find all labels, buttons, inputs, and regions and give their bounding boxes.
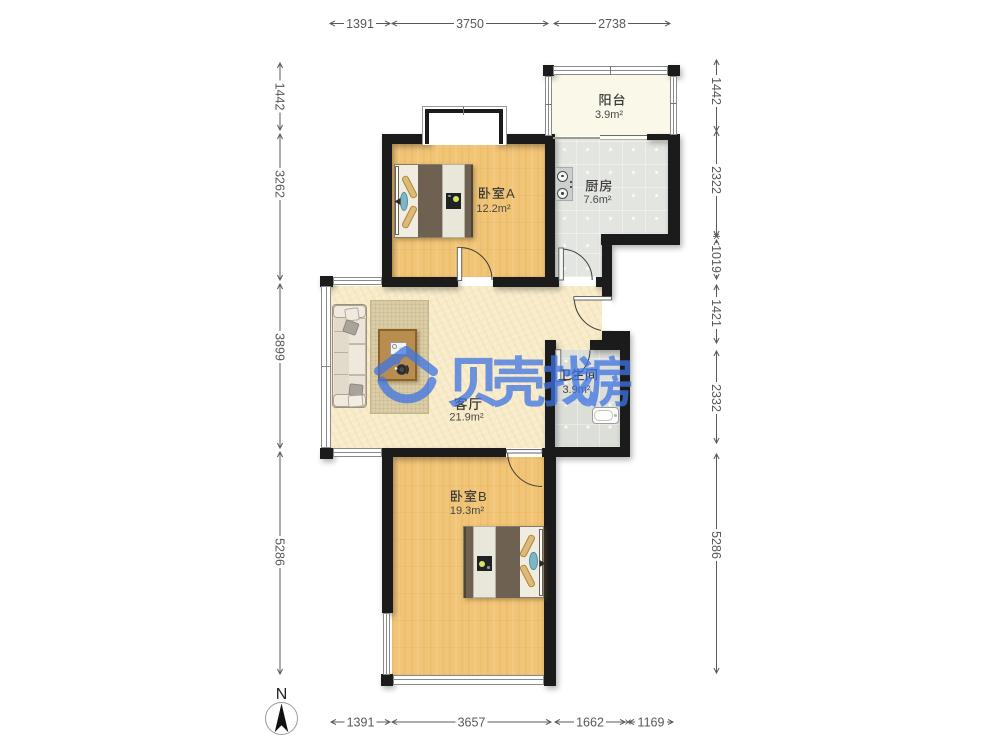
svg-text:5286: 5286 (709, 531, 723, 559)
svg-text:21.9m²: 21.9m² (449, 411, 484, 423)
svg-text:1421: 1421 (709, 299, 723, 327)
svg-text:1391: 1391 (347, 715, 375, 729)
svg-text:1391: 1391 (346, 17, 374, 31)
svg-text:7.6m²: 7.6m² (583, 194, 611, 206)
svg-text:3.9m²: 3.9m² (562, 384, 590, 396)
svg-text:3899: 3899 (273, 333, 287, 361)
svg-text:19.3m²: 19.3m² (450, 505, 485, 517)
svg-text:2322: 2322 (709, 166, 723, 194)
svg-text:1662: 1662 (576, 715, 604, 729)
svg-text:3750: 3750 (456, 17, 484, 31)
svg-text:1169: 1169 (638, 715, 665, 729)
svg-text:3262: 3262 (273, 170, 287, 198)
svg-text:3.9m²: 3.9m² (595, 109, 623, 121)
svg-text:1019: 1019 (709, 245, 723, 273)
svg-text:B: B (478, 489, 487, 504)
svg-text:2738: 2738 (598, 17, 626, 31)
svg-text:N: N (276, 686, 288, 703)
svg-text:1442: 1442 (273, 83, 287, 111)
svg-text:3657: 3657 (458, 715, 486, 729)
svg-text:5286: 5286 (273, 538, 287, 566)
svg-text:12.2m²: 12.2m² (476, 203, 511, 215)
svg-text:1442: 1442 (709, 77, 723, 105)
svg-text:A: A (506, 186, 515, 201)
svg-text:2332: 2332 (709, 384, 723, 412)
